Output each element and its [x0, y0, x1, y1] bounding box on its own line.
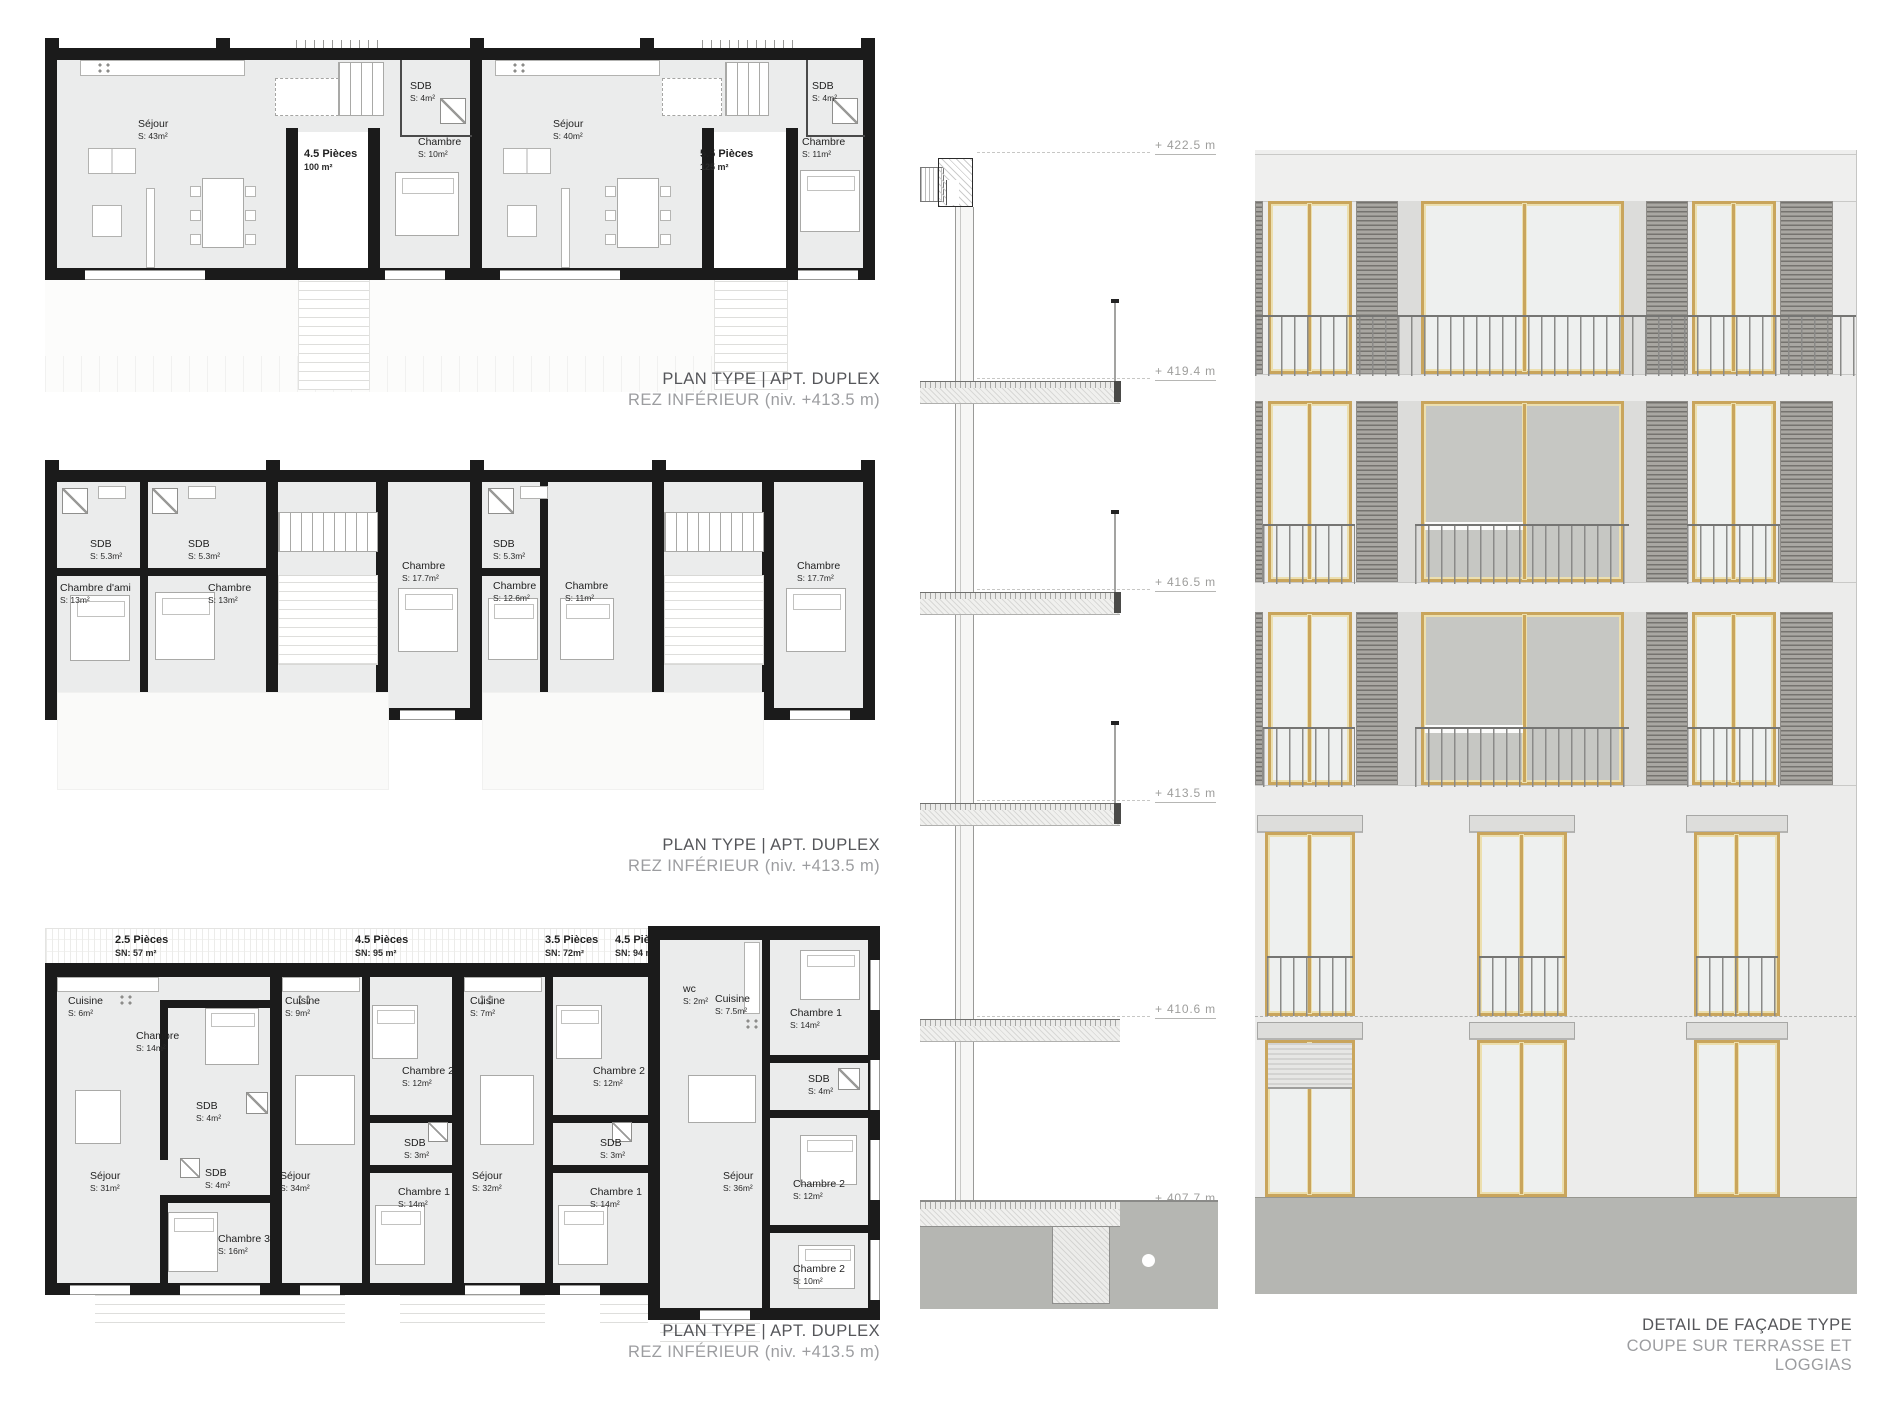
room-label: SDBS: 4m²	[808, 1073, 833, 1097]
window	[870, 1140, 880, 1200]
wall-stub	[216, 38, 230, 48]
room-label: SéjourS: 36m²	[723, 1170, 753, 1194]
room-label: SDBS: 4m²	[812, 80, 837, 104]
room-label: ChambreS: 11m²	[565, 580, 608, 604]
loggia-railing	[1415, 727, 1629, 787]
wall-stub	[861, 38, 875, 48]
bed-symbol	[168, 1212, 218, 1272]
room-label: Chambre 1S: 14m²	[590, 1186, 642, 1210]
slab-end	[1114, 381, 1121, 402]
wall	[362, 1165, 452, 1173]
bed-symbol	[560, 598, 614, 660]
wall	[45, 470, 875, 482]
room-label: ChambreS: 12.6m²	[493, 580, 536, 604]
level-leader	[977, 152, 1150, 153]
level-leader	[977, 1016, 1150, 1017]
sink-symbol	[188, 486, 216, 499]
slab-end	[1114, 803, 1121, 824]
chair-symbol	[245, 186, 256, 197]
room-label: SDBS: 5.3m²	[493, 538, 525, 562]
loggia-railing	[1415, 524, 1629, 584]
armchair-symbol	[507, 205, 537, 237]
room-label: CuisineS: 7m²	[470, 995, 505, 1019]
armchair-symbol	[92, 205, 122, 237]
wall	[160, 1000, 168, 1160]
lintel-box	[1686, 815, 1788, 833]
window	[798, 270, 858, 280]
room-label: CuisineS: 6m²	[68, 995, 103, 1019]
bed-symbol	[488, 598, 538, 660]
cooktop-symbol	[744, 1018, 762, 1029]
roof-band	[1255, 150, 1857, 202]
window	[870, 1060, 880, 1110]
facade-edge	[1856, 150, 1857, 1197]
window	[400, 710, 455, 720]
facade-elevation	[1255, 150, 1857, 1293]
floor-slab	[920, 803, 1120, 826]
loggia-railing	[1263, 727, 1355, 787]
window	[465, 1285, 520, 1295]
shower-symbol	[488, 488, 514, 514]
foundation	[1052, 1226, 1110, 1304]
room-label: ChambreS: 13m²	[208, 582, 251, 606]
shutter-panel	[1255, 612, 1263, 785]
sink-symbol	[98, 486, 126, 499]
french-balcony-railing	[1479, 956, 1565, 1016]
shutter-panel	[1646, 401, 1688, 582]
table-symbol	[480, 1075, 534, 1145]
sideboard-symbol	[146, 188, 155, 268]
chair-symbol	[245, 234, 256, 245]
table-symbol	[202, 178, 244, 248]
caption-plan-top: PLAN TYPE | APT. DUPLEXREZ INFÉRIEUR (ni…	[580, 370, 880, 410]
sofa-symbol	[88, 148, 136, 174]
window	[870, 960, 880, 1010]
wall	[45, 963, 57, 1295]
wall	[45, 963, 652, 977]
window-gold	[1477, 1040, 1567, 1197]
reflection-faded	[482, 692, 764, 790]
kitchen-counter	[282, 977, 360, 992]
window	[300, 1285, 340, 1295]
window	[790, 710, 850, 720]
room-label: ChambreS: 11m²	[802, 136, 845, 160]
bed-symbol	[155, 592, 215, 660]
floor-slab	[920, 592, 1120, 615]
caption-facade: DETAIL DE FAÇADE TYPECOUPE SUR TERRASSE …	[1552, 1316, 1852, 1375]
level-label: + 416.5 m	[1155, 575, 1216, 589]
room-label: SéjourS: 31m²	[90, 1170, 120, 1194]
bed-symbol	[556, 1005, 602, 1059]
window	[560, 1285, 600, 1295]
stair-symbol	[664, 512, 764, 552]
level-label: + 410.6 m	[1155, 1002, 1216, 1016]
wall-stub	[640, 38, 654, 48]
loggia-railing	[1687, 727, 1780, 787]
wall	[286, 128, 298, 280]
wall-ticks	[702, 40, 798, 48]
room-label: Chambre 2S: 12m²	[402, 1065, 454, 1089]
room-label: SéjourS: 32m²	[472, 1170, 502, 1194]
wall	[45, 48, 875, 60]
wardrobe-symbol	[275, 78, 339, 116]
wall	[266, 482, 278, 708]
wall	[786, 128, 798, 280]
bed-symbol	[800, 950, 860, 1000]
room-label: SéjourS: 43m²	[138, 118, 168, 142]
room-label: SéjourS: 40m²	[553, 118, 583, 142]
stair-symbol	[278, 512, 378, 552]
ground-band	[1255, 1197, 1857, 1294]
caption-plan-middle: PLAN TYPE | APT. DUPLEXREZ INFÉRIEUR (ni…	[580, 836, 880, 876]
ground-slab	[920, 1202, 1120, 1227]
window	[870, 1240, 880, 1300]
table-symbol	[295, 1075, 355, 1145]
wall	[652, 482, 664, 708]
chair-symbol	[660, 210, 671, 221]
chair-symbol	[190, 186, 201, 197]
wall-stub	[45, 38, 59, 48]
table-symbol	[688, 1075, 756, 1123]
wall	[45, 470, 57, 720]
unit-label: 5.5 Pièces125 m²	[700, 148, 753, 173]
window	[85, 270, 205, 280]
level-leader	[977, 800, 1150, 801]
bed-symbol	[800, 170, 860, 232]
room-label: Chambre 3S: 16m²	[218, 1233, 270, 1257]
lintel-box	[1686, 1022, 1788, 1040]
room-label: CuisineS: 9m²	[285, 995, 320, 1019]
room-label: SDBS: 3m²	[404, 1137, 429, 1161]
wall	[762, 940, 770, 1308]
floor-slab	[920, 381, 1120, 404]
room-label: Chambre 2S: 10m²	[793, 1263, 845, 1287]
wall	[762, 1225, 868, 1233]
room-label: ChambreS: 17.7m²	[797, 560, 840, 584]
bed-symbol	[398, 588, 458, 652]
wall	[452, 963, 464, 1295]
shutter-panel	[1356, 612, 1398, 785]
ground-mass	[920, 1200, 1218, 1309]
wall	[762, 1055, 868, 1063]
chair-symbol	[190, 210, 201, 221]
room-label: SDBS: 5.3m²	[90, 538, 122, 562]
stair-symbol	[338, 62, 384, 116]
loggia-void	[278, 575, 378, 665]
wall	[652, 1308, 880, 1320]
railing-post	[1114, 514, 1116, 592]
glass-line	[960, 207, 961, 1200]
room-label: Chambre 1S: 14m²	[790, 1007, 842, 1031]
bed-symbol	[372, 1005, 418, 1059]
wall	[45, 48, 57, 280]
room-label: SéjourS: 34m²	[280, 1170, 310, 1194]
table-symbol	[75, 1090, 121, 1144]
window	[70, 1285, 130, 1295]
wall-stub	[266, 460, 280, 470]
stair-symbol	[725, 62, 769, 116]
railing-post	[1114, 303, 1116, 381]
chair-symbol	[660, 186, 671, 197]
level-leader	[977, 378, 1150, 379]
bed-symbol	[375, 1205, 425, 1265]
level-label: + 422.5 m	[1155, 138, 1216, 152]
wall	[545, 977, 553, 1283]
loggia-deck	[95, 1295, 345, 1323]
bed-symbol	[786, 588, 846, 652]
kitchen-counter	[57, 977, 159, 992]
window	[385, 270, 445, 280]
shutter-panel	[1255, 401, 1263, 582]
shower-symbol	[838, 1068, 860, 1090]
unit-label: 4.5 Pièces100 m²	[304, 148, 357, 173]
room-label: wcS: 2m²	[683, 983, 708, 1007]
railing-post	[1114, 725, 1116, 803]
shower-symbol	[428, 1122, 448, 1142]
room-label: ChambreS: 17.7m²	[402, 560, 445, 584]
architectural-sheet: SéjourS: 43m² 4.5 Pièces100 m² SDBS: 4m²…	[0, 0, 1890, 1417]
chair-symbol	[660, 234, 671, 245]
loggia-deck	[600, 1295, 648, 1323]
wall	[545, 1115, 652, 1123]
window-mullion	[1735, 1043, 1738, 1194]
window-section-line	[955, 207, 974, 1200]
shower-symbol	[62, 488, 88, 514]
wall	[470, 470, 482, 720]
lintel-box	[1257, 815, 1363, 833]
lintel-box	[1469, 1022, 1575, 1040]
wall	[545, 1165, 652, 1173]
chair-symbol	[245, 210, 256, 221]
shutter-panel	[1780, 612, 1833, 785]
wall	[648, 926, 660, 1320]
shutter-panel	[1780, 401, 1833, 582]
cooktop-symbol	[96, 62, 114, 73]
level-leader	[977, 589, 1150, 590]
wall	[160, 1000, 270, 1008]
wall	[540, 482, 548, 708]
room-label: SDBS: 4m²	[205, 1167, 230, 1191]
terrace-stair	[298, 280, 370, 390]
reflection-faded	[57, 692, 389, 790]
wall-stub	[652, 460, 666, 470]
wall	[160, 1195, 168, 1283]
french-balcony-railing	[1267, 956, 1353, 1016]
level-label: + 413.5 m	[1155, 786, 1216, 800]
level-label: + 419.4 m	[1155, 364, 1216, 378]
window	[180, 1285, 260, 1295]
sideboard-symbol	[561, 188, 570, 268]
window	[700, 1310, 750, 1320]
wall	[362, 977, 370, 1283]
unit-header: 3.5 PiècesSN: 72m²	[545, 934, 598, 959]
room-label: Chambre 2S: 12m²	[593, 1065, 645, 1089]
window-gold	[1694, 1040, 1780, 1197]
parapet-notch	[946, 180, 959, 205]
wardrobe-symbol	[662, 78, 722, 116]
shower-symbol	[246, 1092, 268, 1114]
drain-pipe	[1142, 1254, 1155, 1267]
window-mullion	[1520, 1043, 1523, 1194]
room-label: SDBS: 4m²	[410, 80, 435, 104]
loggia-deck	[400, 1295, 545, 1323]
wall-stub	[470, 460, 484, 470]
shower-symbol	[180, 1158, 200, 1178]
room-label: Chambre 1S: 14m²	[398, 1186, 450, 1210]
window	[500, 270, 620, 280]
wall	[482, 568, 542, 576]
room-label: SDBS: 4m²	[196, 1100, 221, 1124]
shower-symbol	[440, 98, 466, 124]
caption-plan-bottom: PLAN TYPE | APT. DUPLEXREZ INFÉRIEUR (ni…	[580, 1322, 880, 1362]
wall	[652, 926, 880, 940]
bed-symbol	[205, 1008, 259, 1065]
room-label: SDBS: 5.3m²	[188, 538, 220, 562]
loggia-void	[664, 575, 764, 665]
loggia-railing	[1263, 524, 1355, 584]
wall-stub	[45, 460, 59, 470]
kitchen-counter	[464, 977, 542, 992]
unit-header: 2.5 PiècesSN: 57 m²	[115, 934, 168, 959]
sink-symbol	[520, 486, 548, 499]
wall	[140, 482, 148, 708]
roller-blind	[1268, 1043, 1352, 1089]
shutter-panel	[1356, 401, 1398, 582]
lintel-box	[1469, 815, 1575, 833]
shower-symbol	[152, 488, 178, 514]
level-dashed-line	[1255, 1016, 1857, 1017]
cooktop-symbol	[511, 62, 529, 73]
room-label: ChambreS: 10m²	[418, 136, 461, 160]
wall	[762, 1110, 868, 1118]
floor-slab	[920, 1019, 1120, 1042]
wall	[57, 568, 267, 576]
chair-symbol	[605, 234, 616, 245]
room-label: Chambre d'amiS: 13m²	[60, 582, 131, 606]
unit-header: 4.5 PiècesSN: 95 m²	[355, 934, 408, 959]
sofa-symbol	[503, 148, 551, 174]
facade-section: + 422.5 m + 419.4 m + 416.5 m + 413.5 m …	[900, 130, 1230, 1320]
cooktop-symbol	[118, 994, 136, 1005]
bed-symbol	[558, 1205, 608, 1265]
loggia-railing	[1687, 524, 1780, 584]
wall-stub	[470, 38, 484, 48]
wall-ticks	[296, 40, 380, 48]
chair-symbol	[605, 186, 616, 197]
room-label: ChambreS: 14m²	[136, 1030, 179, 1054]
wall	[160, 1195, 270, 1203]
lintel-box	[1257, 1022, 1363, 1040]
terrace-railing	[1255, 315, 1857, 376]
plan-top: SéjourS: 43m² 4.5 Pièces100 m² SDBS: 4m²…	[0, 0, 900, 420]
chair-symbol	[605, 210, 616, 221]
slab-end	[1114, 592, 1121, 613]
french-balcony-railing	[1696, 956, 1778, 1016]
wall	[368, 128, 380, 280]
plan-bottom: 2.5 PiècesSN: 57 m² 4.5 PiècesSN: 95 m² …	[0, 900, 900, 1360]
wall-stub	[861, 460, 875, 470]
wall	[863, 470, 875, 720]
room-label: Chambre 2S: 12m²	[793, 1178, 845, 1202]
shutter-panel	[1646, 612, 1688, 785]
wall	[270, 963, 282, 1295]
room-label: CuisineS: 7.5m²	[715, 993, 750, 1017]
room-label: SDBS: 3m²	[600, 1137, 625, 1161]
parapet-line	[1255, 154, 1857, 155]
plan-middle: SDBS: 5.3m² SDBS: 5.3m² Chambre d'amiS: …	[0, 440, 900, 800]
table-symbol	[617, 178, 659, 248]
chair-symbol	[190, 234, 201, 245]
bed-symbol	[395, 172, 459, 236]
